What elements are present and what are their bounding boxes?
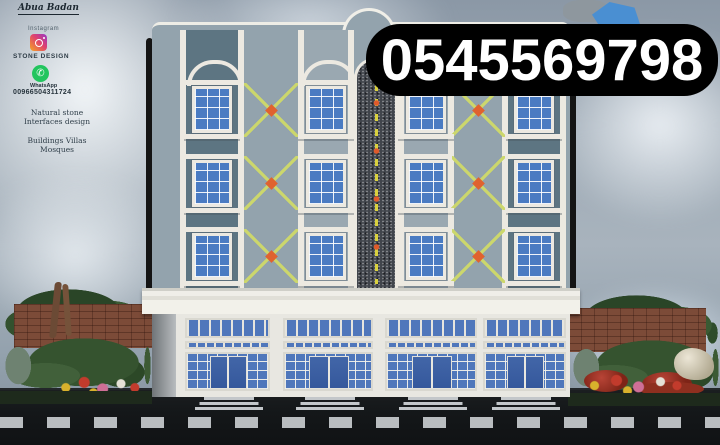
window [192,233,232,280]
storefront-door [210,356,248,389]
signature: Abua Badan [18,3,79,15]
storefront-bay [385,318,477,391]
tagline-line1: Natural stone [12,108,102,117]
x-decoration [244,229,298,283]
instagram-handle: STONE DESIGN [13,53,69,60]
step-tread [399,407,467,410]
side-column [152,314,176,397]
window [192,160,232,207]
storefront-bay [185,318,270,391]
storefront-glass [385,352,477,391]
step-tread [305,397,355,400]
step-tread [408,397,458,400]
storefront-glass [185,352,270,391]
transom-glass [185,341,270,349]
storefront-door [507,356,544,389]
window [306,160,346,207]
garden-right [568,288,720,406]
hedge-base [0,391,152,404]
entry-steps [399,397,467,411]
whatsapp-number: 00966504311724 [13,89,71,96]
window [514,160,554,207]
tagline-line2: Interfaces design [12,117,102,126]
transom-glass [283,318,373,338]
transom-glass [185,318,270,338]
instagram-icon [30,34,47,51]
step-tread [200,402,259,405]
cornice [142,288,580,314]
whatsapp-icon: ✆ [32,65,49,82]
step-tread [204,397,254,400]
services: Buildings Villas Mosques [12,136,102,155]
phone-banner: 0545569798 [366,24,718,96]
window [406,160,446,207]
tagline: Natural stone Interfaces design [12,108,102,127]
x-decoration [244,156,298,210]
transom-glass [385,318,477,338]
garden-left [0,282,152,404]
services-line1: Buildings Villas [12,136,102,145]
phone-glyph: ✆ [36,69,44,79]
phone-number: 0545569798 [381,27,704,94]
storefront-glass [483,352,566,391]
entry-steps [492,397,560,411]
x-decoration [451,229,505,283]
storefront-door [309,356,349,389]
window [406,233,446,280]
curb-markings [0,417,720,428]
transom-glass [385,341,477,349]
entry-steps [195,397,263,411]
window [192,86,232,133]
hedge-base [568,393,720,406]
storefront-glass [283,352,373,391]
step-tread [195,407,263,410]
step-tread [501,397,551,400]
transom-glass [483,318,566,338]
x-decoration [451,156,505,210]
window [306,86,346,133]
window [514,233,554,280]
step-tread [492,407,560,410]
poster-canvas: 0545569798 Abua Badan Instagram STONE DE… [0,0,720,445]
step-tread [301,402,360,405]
services-line2: Mosques [12,145,102,154]
step-tread [404,402,463,405]
storefront-bay [483,318,566,391]
step-tread [296,407,364,410]
transom-glass [283,341,373,349]
contact-sidebar: Abua Badan Instagram STONE DESIGN ✆ What… [0,0,118,180]
window [306,233,346,280]
transom-glass [483,341,566,349]
storefront-bay [283,318,373,391]
step-tread [497,402,556,405]
entry-steps [296,397,364,411]
instagram-label: Instagram [28,26,59,32]
storefront-door [412,356,453,389]
ground-floor [152,314,570,397]
x-decoration [244,83,298,137]
